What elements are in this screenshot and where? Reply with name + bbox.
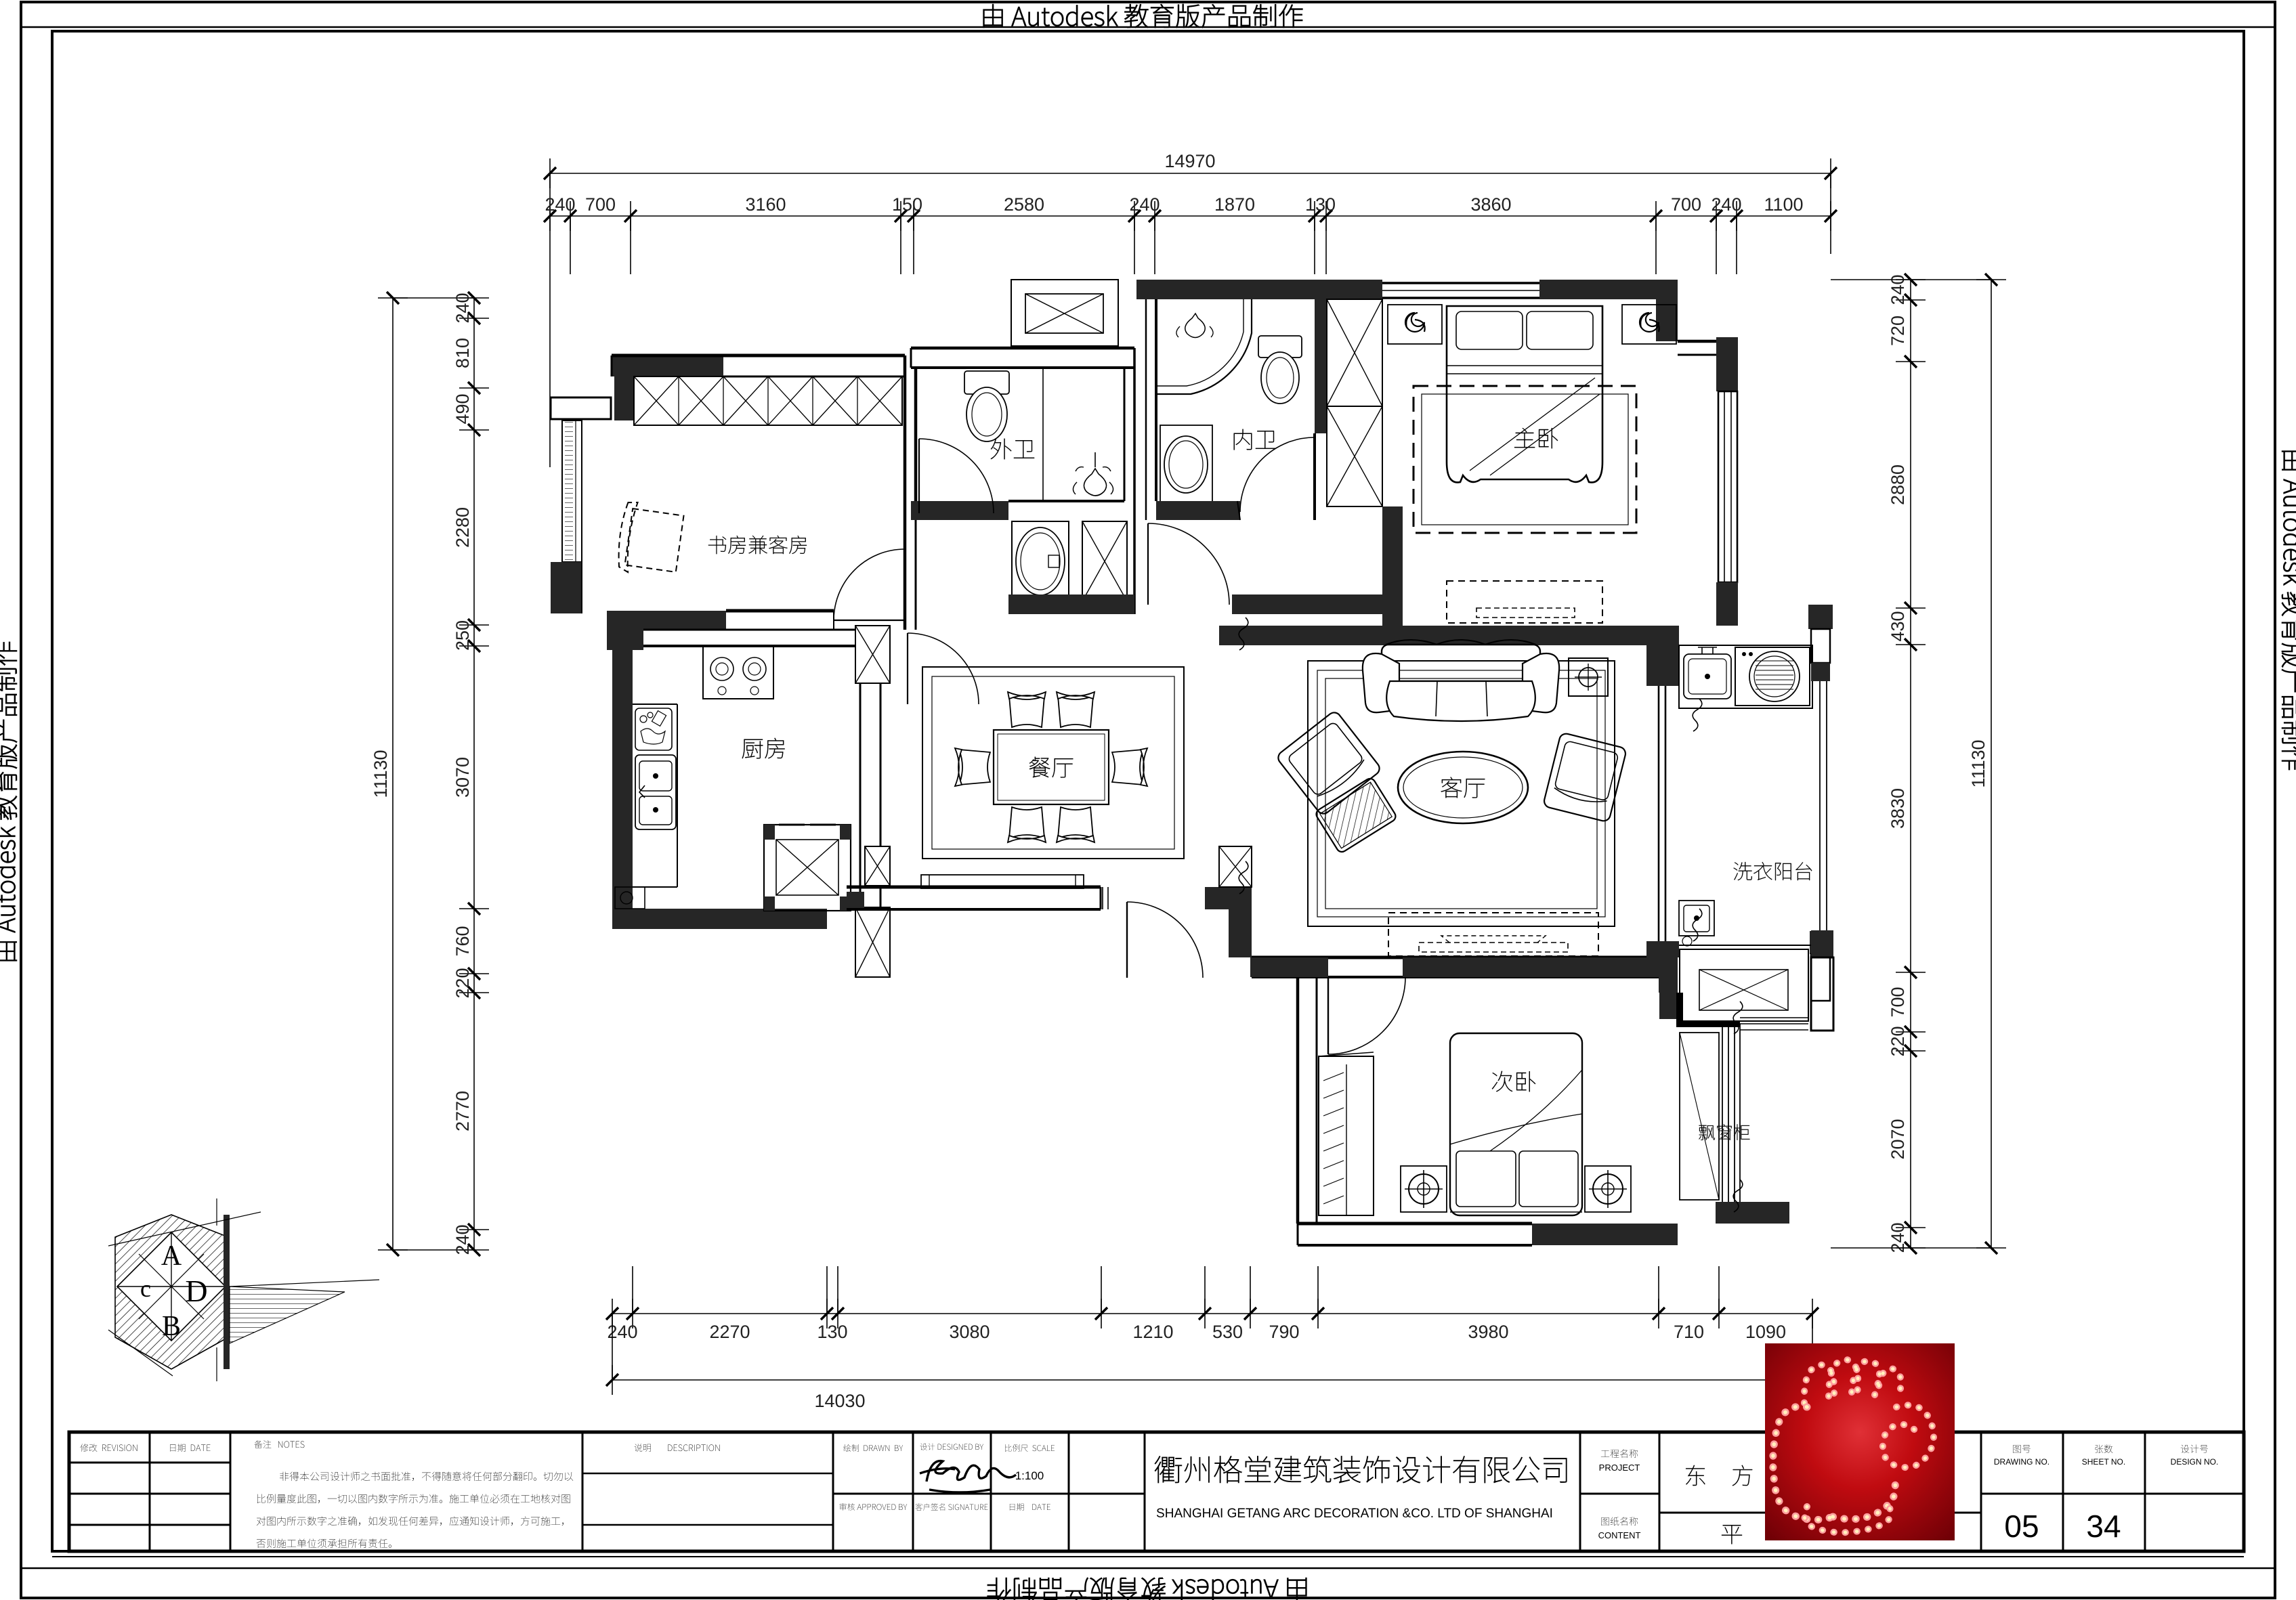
svg-text:530: 530 (1212, 1322, 1243, 1342)
svg-text:2770: 2770 (452, 1091, 473, 1131)
svg-text:DRAWING NO.: DRAWING NO. (1994, 1457, 2049, 1467)
svg-text:11130: 11130 (1968, 739, 1989, 787)
svg-text:700: 700 (1888, 987, 1908, 1017)
svg-text:2070: 2070 (1888, 1119, 1908, 1159)
svg-text:430: 430 (1888, 611, 1908, 641)
svg-text:D: D (185, 1274, 207, 1308)
svg-text:150: 150 (892, 194, 922, 215)
svg-text:CONTENT: CONTENT (1598, 1530, 1641, 1540)
svg-text:240: 240 (1711, 194, 1741, 215)
svg-text:05: 05 (2004, 1509, 2039, 1544)
svg-text:250: 250 (452, 620, 473, 651)
svg-text:2880: 2880 (1888, 464, 1908, 505)
svg-text:760: 760 (452, 926, 473, 956)
svg-text:130: 130 (817, 1322, 847, 1342)
svg-text:810: 810 (452, 338, 473, 368)
svg-text:2280: 2280 (452, 507, 473, 548)
svg-text:2580: 2580 (1004, 194, 1044, 215)
svg-text:SHANGHAI GETANG ARC DECORAT: SHANGHAI GETANG ARC DECORATION &CO. LTD … (1156, 1507, 1553, 1521)
svg-text:2270: 2270 (709, 1322, 750, 1342)
svg-text:1090: 1090 (1745, 1322, 1786, 1342)
svg-text:SHEET NO.: SHEET NO. (2082, 1457, 2125, 1467)
svg-text:490: 490 (452, 393, 473, 424)
svg-text:700: 700 (1671, 194, 1701, 215)
svg-text:3830: 3830 (1888, 788, 1908, 829)
svg-text:3160: 3160 (745, 194, 786, 215)
svg-text:790: 790 (1269, 1322, 1299, 1342)
svg-text:130: 130 (1305, 194, 1336, 215)
svg-text:c: c (140, 1275, 151, 1302)
svg-text:240: 240 (545, 194, 575, 215)
svg-text:14970: 14970 (1164, 151, 1215, 171)
svg-text:14030: 14030 (814, 1391, 865, 1411)
svg-text:3080: 3080 (949, 1322, 990, 1342)
svg-text:B: B (162, 1311, 181, 1342)
svg-text:DESIGN NO.: DESIGN NO. (2171, 1457, 2219, 1467)
svg-text:3070: 3070 (452, 757, 473, 798)
svg-text:240: 240 (452, 293, 473, 323)
svg-text:3860: 3860 (1470, 194, 1511, 215)
svg-text:710: 710 (1674, 1322, 1704, 1342)
svg-text:1:100: 1:100 (1015, 1469, 1044, 1482)
svg-text:220: 220 (1888, 1026, 1908, 1056)
svg-text:11130: 11130 (370, 750, 391, 798)
svg-text:34: 34 (2086, 1509, 2121, 1544)
svg-text:1870: 1870 (1214, 194, 1255, 215)
svg-text:700: 700 (585, 194, 616, 215)
svg-text:PROJECT: PROJECT (1599, 1463, 1640, 1473)
svg-text:1210: 1210 (1132, 1322, 1173, 1342)
svg-text:220: 220 (452, 968, 473, 998)
svg-text:1100: 1100 (1764, 194, 1803, 215)
svg-text:720: 720 (1888, 316, 1908, 346)
svg-text:A: A (161, 1240, 182, 1272)
svg-text:240: 240 (1129, 194, 1160, 215)
svg-text:3980: 3980 (1468, 1322, 1508, 1342)
svg-text:240: 240 (452, 1224, 473, 1255)
